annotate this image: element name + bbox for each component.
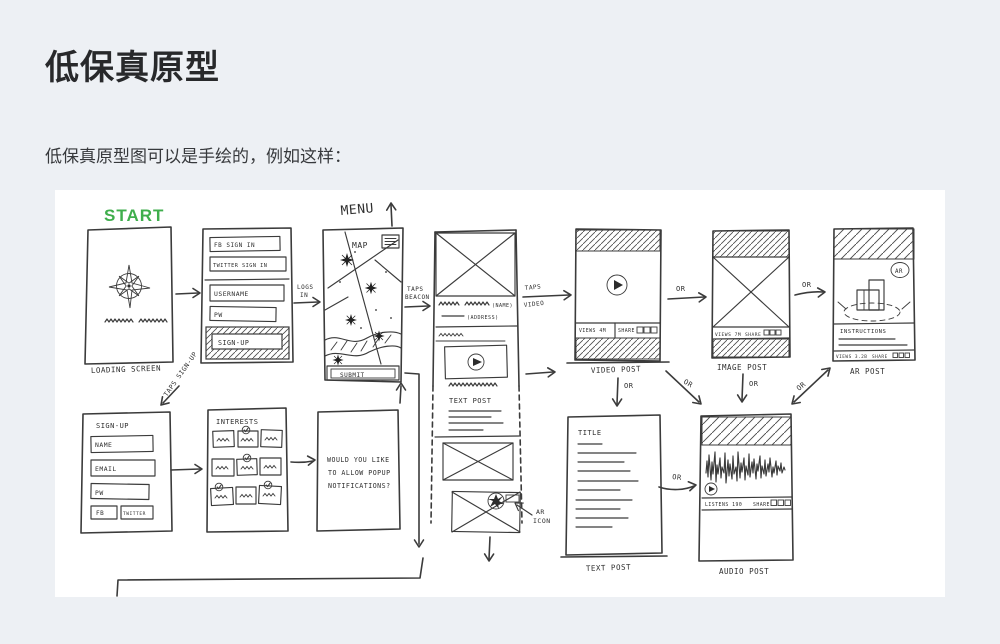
interest-tiles <box>211 426 283 505</box>
interests-title: INTERESTS <box>216 418 258 426</box>
checkmark-icon <box>242 426 250 434</box>
text-post-caption: TEXT POST <box>586 562 631 573</box>
image-views-stat: VIEWS 7M <box>715 332 741 338</box>
feed-video-card <box>445 345 508 386</box>
signup-name-field: NAME <box>95 441 112 449</box>
signup-twitter-button: TWITTER <box>123 511 146 517</box>
feed-text-post-label: TEXT POST <box>449 397 492 405</box>
flow-arrow-lower <box>526 368 555 377</box>
feed-map-image-placeholder <box>436 233 515 296</box>
logs-in-label: LOGS <box>297 284 313 291</box>
notifications-text-line2: TO ALLOW POPUP <box>328 469 391 477</box>
loading-screen-caption: LOADING SCREEN <box>91 364 161 375</box>
text-post-title: TITLE <box>578 429 602 437</box>
submit-up-arrow <box>397 383 406 403</box>
feed-screen-wireframe: (NAME) (ADDRESS) TEXT POST <box>431 230 551 561</box>
signup-button: SIGN-UP <box>218 339 249 347</box>
notifications-screen-wireframe: WOULD YOU LIKE TO ALLOW POPUP NOTIFICATI… <box>317 410 400 531</box>
video-share-label: SHARE <box>618 328 635 334</box>
or-label: OR <box>624 382 634 390</box>
audio-share-label: SHARE <box>753 502 770 508</box>
audio-play-icon <box>705 483 717 495</box>
or-label: OR <box>676 285 686 293</box>
taps-video-label1: TAPS <box>524 283 541 292</box>
hand-drawn-wireframe-flow: START LOADING SCREEN <box>55 190 945 597</box>
video-views-stat: VIEWS 4M <box>579 328 606 334</box>
or-arrow-video-audio: OR <box>666 371 704 407</box>
wireframe-sketch-image: START LOADING SCREEN <box>55 190 945 597</box>
pw-field: PW <box>214 311 223 319</box>
audio-post-caption: AUDIO POST <box>719 567 769 576</box>
ar-instructions-label: INSTRUCTIONS <box>840 329 886 335</box>
or-arrow-image-audio: OR <box>738 374 759 402</box>
taps-beacon-arrow: TAPS BEACON <box>405 286 430 311</box>
notifications-text-line3: NOTIFICATIONS? <box>328 482 391 490</box>
taps-video-label2: VIDEO <box>523 300 544 309</box>
signin-screen-wireframe: FB SIGN IN TWITTER SIGN IN USERNAME PW S… <box>201 228 293 363</box>
menu-label: MENU <box>340 201 374 219</box>
flow-arrow <box>291 456 315 466</box>
signup-title: SIGN-UP <box>96 422 129 430</box>
checkmark-icon <box>215 483 223 491</box>
or-label: OR <box>672 473 682 482</box>
signup-pw-field: PW <box>95 489 104 497</box>
ar-badge: AR <box>895 269 903 275</box>
beacon-name-label: (NAME) <box>492 303 513 309</box>
ar-icon-label1: AR <box>536 508 545 516</box>
ar-icon-label2: ICON <box>533 517 551 525</box>
ar-building-sketch <box>838 280 910 321</box>
beacon-address-label: (ADDRESS) <box>467 315 499 321</box>
or-arrow-video-image: OR <box>668 285 706 302</box>
intro-text: 低保真原型图可以是手绘的，例如这样： <box>45 142 351 167</box>
menu-arrow: MENU <box>340 201 396 226</box>
or-arrow-video-text: OR <box>613 378 634 406</box>
page-title: 低保真原型 <box>45 40 220 89</box>
taps-video-arrow: TAPS VIDEO <box>523 283 571 309</box>
or-arrow-audio-ar: OR <box>789 365 833 408</box>
twitter-signin-field: TWITTER SIGN IN <box>213 263 267 269</box>
audio-listens-stat: LISTENS 190 <box>705 502 742 508</box>
signup-screen-wireframe: SIGN-UP NAME EMAIL PW FB TWITTER <box>81 412 172 533</box>
taps-signup-arrow: TAPS SIGN-UP <box>158 350 199 408</box>
logs-in-arrow: LOGS IN <box>294 284 320 307</box>
ar-icon-callout: AR ICON <box>513 499 551 525</box>
or-label: OR <box>802 281 812 289</box>
image-post-wireframe: VIEWS 7M SHARE IMAGE POST <box>712 230 790 372</box>
compass-icon <box>109 265 150 308</box>
start-label: START <box>104 206 164 225</box>
map-title: MAP <box>352 241 368 250</box>
article-page: 低保真原型 低保真原型图可以是手绘的，例如这样： START <box>0 0 1000 644</box>
video-post-wireframe: VIEWS 4M SHARE VIDEO POST <box>567 229 669 375</box>
checkmark-icon <box>243 454 251 462</box>
text-post-wireframe: TITLE TEXT POST <box>561 415 667 573</box>
video-post-caption: VIDEO POST <box>591 364 641 375</box>
taps-signup-label: TAPS SIGN-UP <box>162 350 199 398</box>
image-share-label: SHARE <box>745 332 761 338</box>
map-screen-wireframe: MAP <box>323 228 403 382</box>
or-label: OR <box>749 380 759 388</box>
flow-arrow <box>176 289 200 298</box>
scroll-down-arrow <box>485 537 494 561</box>
signup-email-field: EMAIL <box>95 465 117 473</box>
checkmark-icon <box>264 481 272 489</box>
ar-share-label: SHARE <box>872 354 888 360</box>
ar-post-caption: AR POST <box>850 367 885 376</box>
taps-beacon-label1: TAPS <box>407 286 423 293</box>
username-field: USERNAME <box>214 290 249 298</box>
flow-arrow <box>171 465 202 474</box>
fb-signin-field: FB SIGN IN <box>214 242 255 249</box>
loading-screen-wireframe: LOADING SCREEN <box>85 227 173 375</box>
audio-post-wireframe: LISTENS 190 SHARE AUDIO POST <box>699 414 793 576</box>
logs-in-label2: IN <box>300 292 308 299</box>
signup-fb-button: FB <box>96 510 104 517</box>
or-arrow-text-audio: OR <box>659 473 697 491</box>
or-arrow-image-ar: OR <box>795 281 825 297</box>
ar-post-wireframe: AR INSTRUCTIONS VIEWS 3.2B SHARE AR POS <box>833 228 915 376</box>
notifications-text-line1: WOULD YOU LIKE <box>327 456 390 464</box>
map-submit-bar: SUBMIT <box>340 372 365 379</box>
feed-image-post-card <box>443 443 513 480</box>
feed-text-post-card: TEXT POST <box>435 397 519 437</box>
taps-beacon-label2: BEACON <box>405 294 430 301</box>
feed-ar-post-card <box>452 491 521 532</box>
interests-screen-wireframe: INTERESTS <box>207 408 288 532</box>
ar-views-stat: VIEWS 3.2B <box>836 354 867 360</box>
image-post-caption: IMAGE POST <box>717 363 767 372</box>
